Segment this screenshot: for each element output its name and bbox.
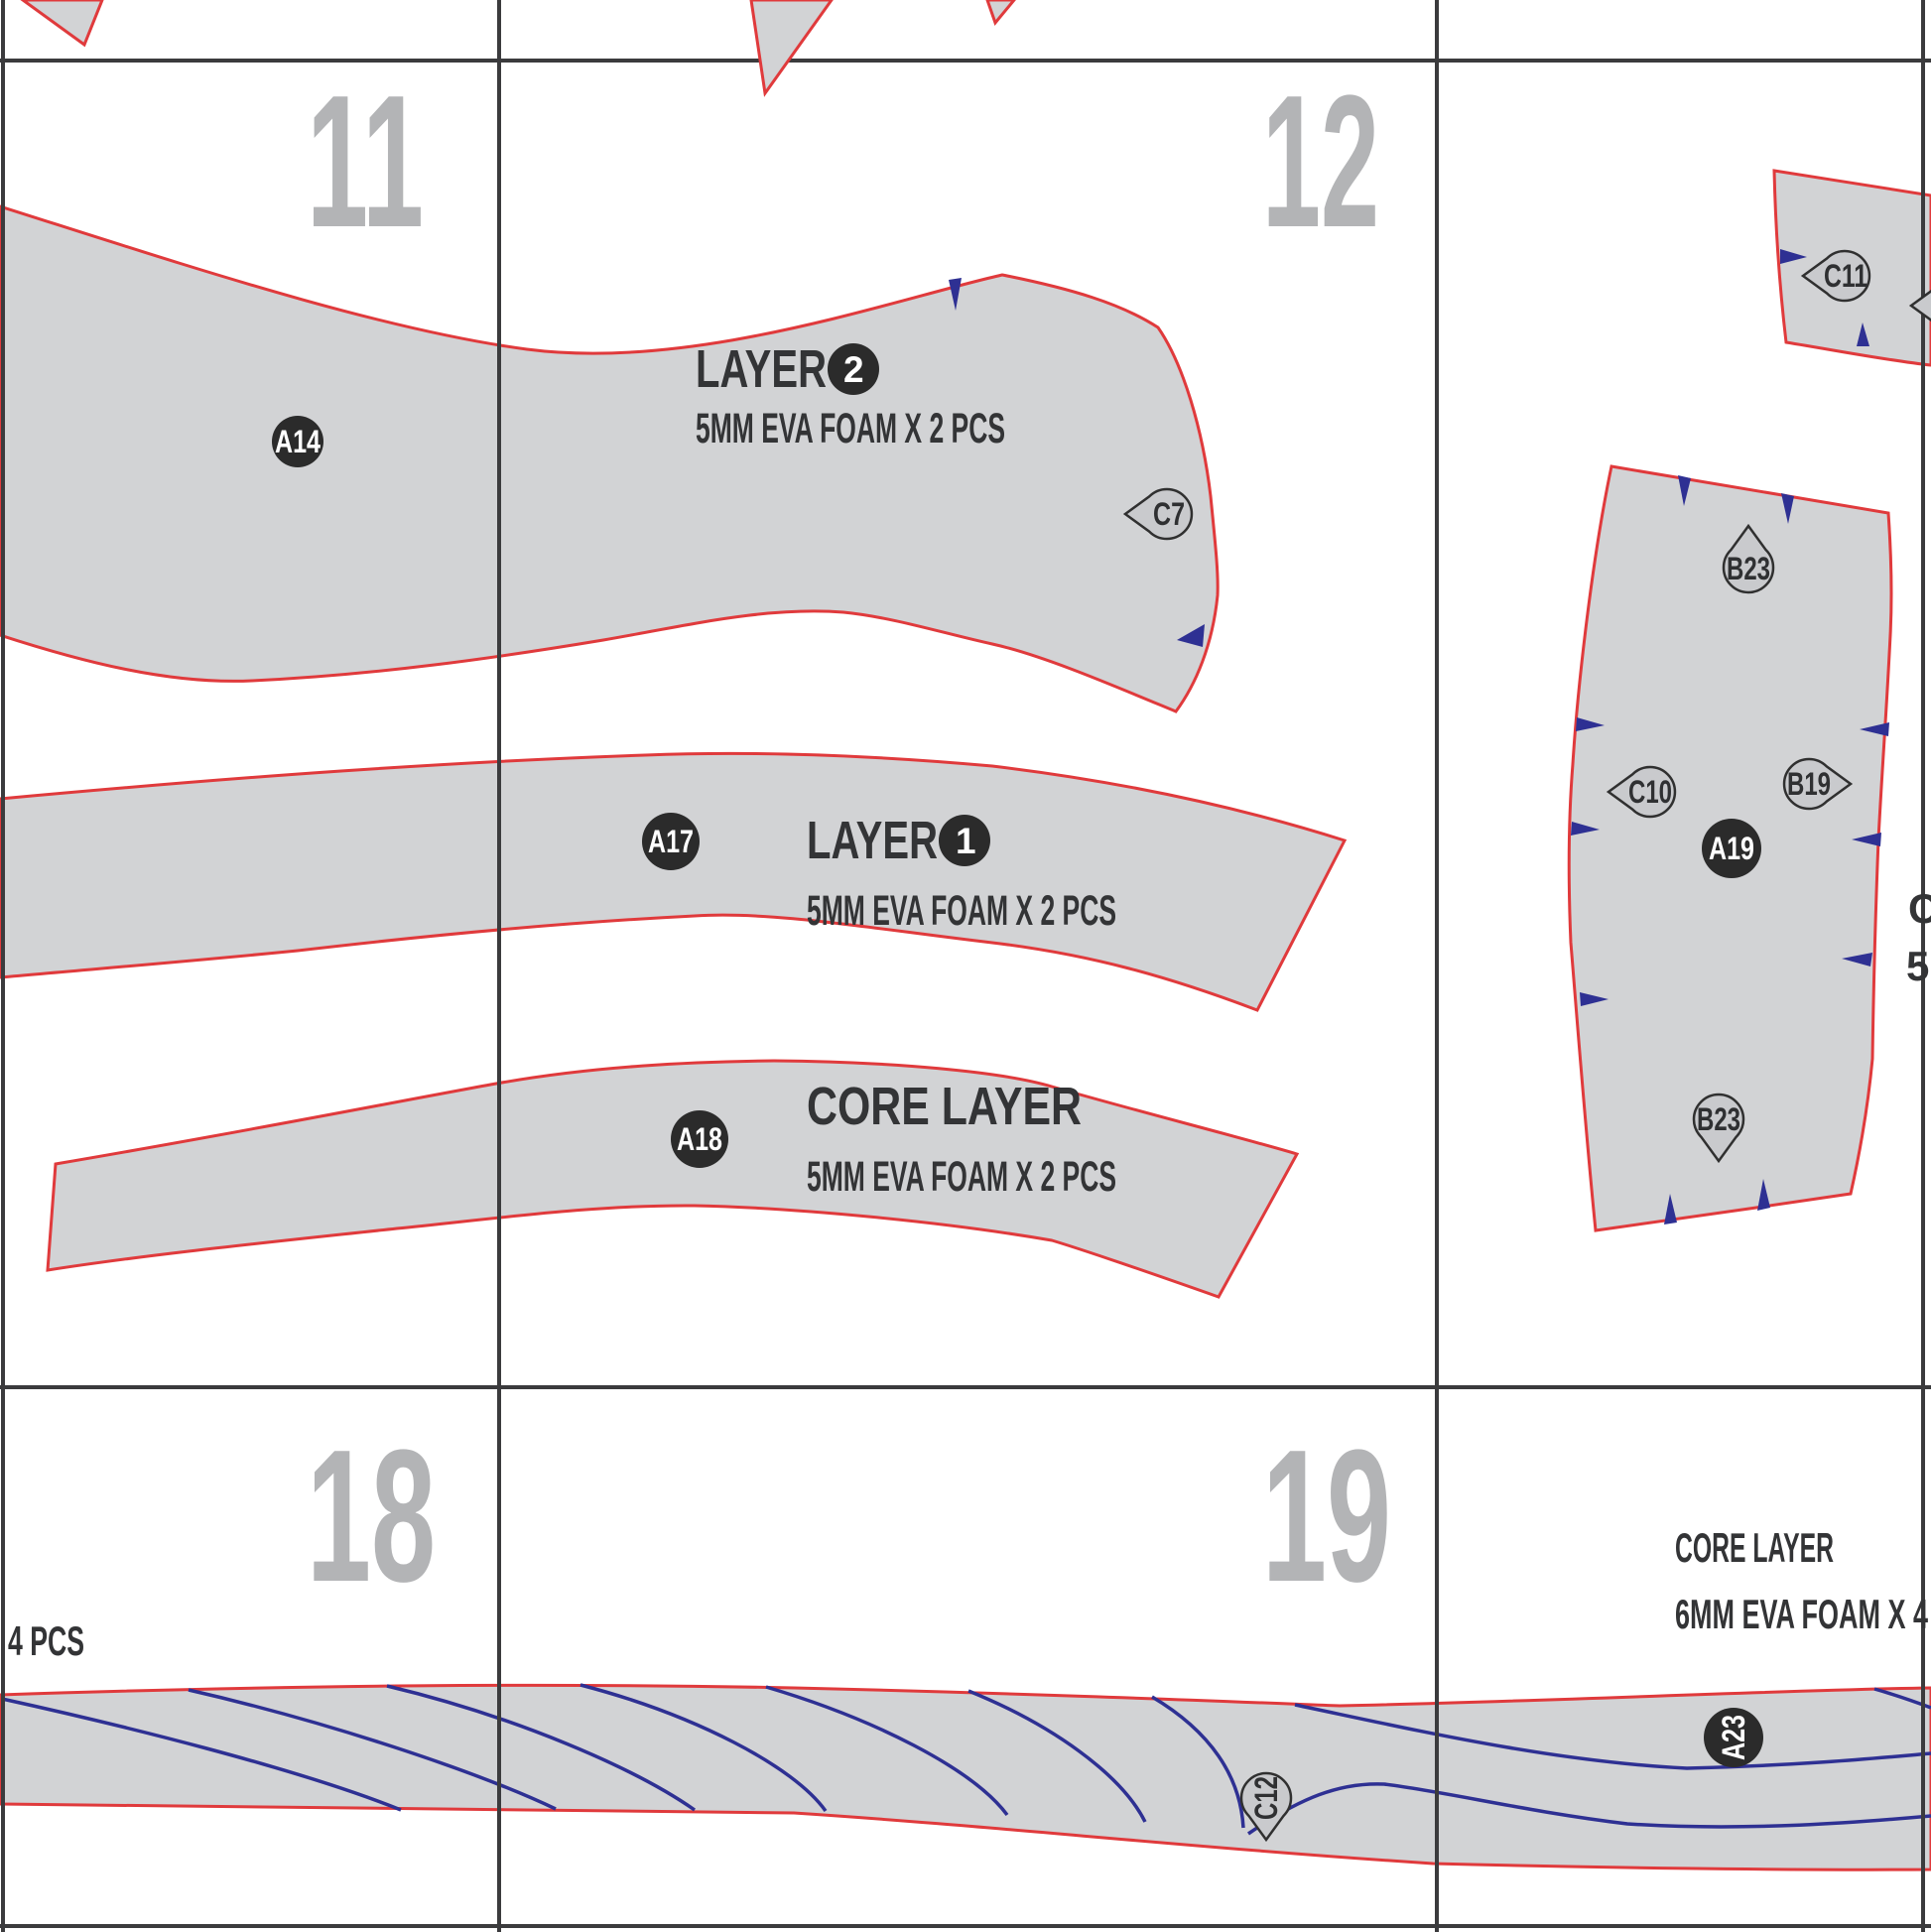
page-number-12: 12 (1262, 57, 1379, 267)
pattern-canvas: 11 12 18 19 C7 C11 (0, 0, 1931, 1932)
marker-label: B23 (1727, 551, 1770, 586)
piece-a17 (0, 753, 1345, 1010)
core-spec: 5MM EVA FOAM X 2 PCS (807, 1153, 1116, 1201)
piece-corner-triangle (23, 0, 102, 45)
right-core-spec: 6MM EVA FOAM X 4 (1675, 1591, 1928, 1637)
badge-label: A23 (1716, 1715, 1751, 1760)
marker-label: B19 (1787, 766, 1831, 802)
marker-label: C7 (1153, 496, 1185, 532)
layer2-spec: 5MM EVA FOAM X 2 PCS (696, 405, 1005, 452)
marker-label: C12 (1248, 1776, 1284, 1820)
piece-a14-c7 (0, 206, 1218, 711)
marker-label: C11 (1824, 258, 1867, 294)
piece-top-triangle (751, 0, 832, 93)
page-number-19: 19 (1262, 1411, 1391, 1621)
left-edge-partial-label: 4 PCS (8, 1617, 84, 1664)
layer1-title: LAYER (807, 811, 938, 870)
layer1-spec: 5MM EVA FOAM X 2 PCS (807, 887, 1116, 935)
piece-top-small-v (987, 0, 1014, 23)
badge-a17: A17 (642, 813, 700, 870)
right-edge-partial-line2: 5M (1906, 943, 1931, 989)
badge-label: A18 (677, 1121, 722, 1157)
badge-a18: A18 (671, 1110, 728, 1168)
layer2-title: LAYER (696, 339, 827, 399)
layer1-number: 1 (956, 821, 976, 861)
page-number-11: 11 (307, 57, 424, 267)
marker-label: C10 (1628, 774, 1672, 810)
layer2-number: 2 (843, 349, 864, 390)
pattern-sheet: 11 12 18 19 C7 C11 (0, 0, 1931, 1932)
right-core-title: CORE LAYER (1675, 1524, 1834, 1571)
pattern-pieces (0, 0, 1931, 1869)
marker-label: B23 (1697, 1101, 1740, 1137)
badge-label: A14 (275, 424, 321, 459)
badge-a14: A14 (272, 416, 323, 467)
badge-a23: A23 (1704, 1708, 1763, 1767)
right-edge-partial-line1: C (1908, 885, 1931, 932)
core-title: CORE LAYER (807, 1077, 1082, 1136)
page-number-18: 18 (307, 1411, 436, 1621)
badge-a19: A19 (1702, 819, 1761, 878)
badge-label: A17 (648, 824, 694, 859)
badge-label: A19 (1709, 831, 1754, 866)
